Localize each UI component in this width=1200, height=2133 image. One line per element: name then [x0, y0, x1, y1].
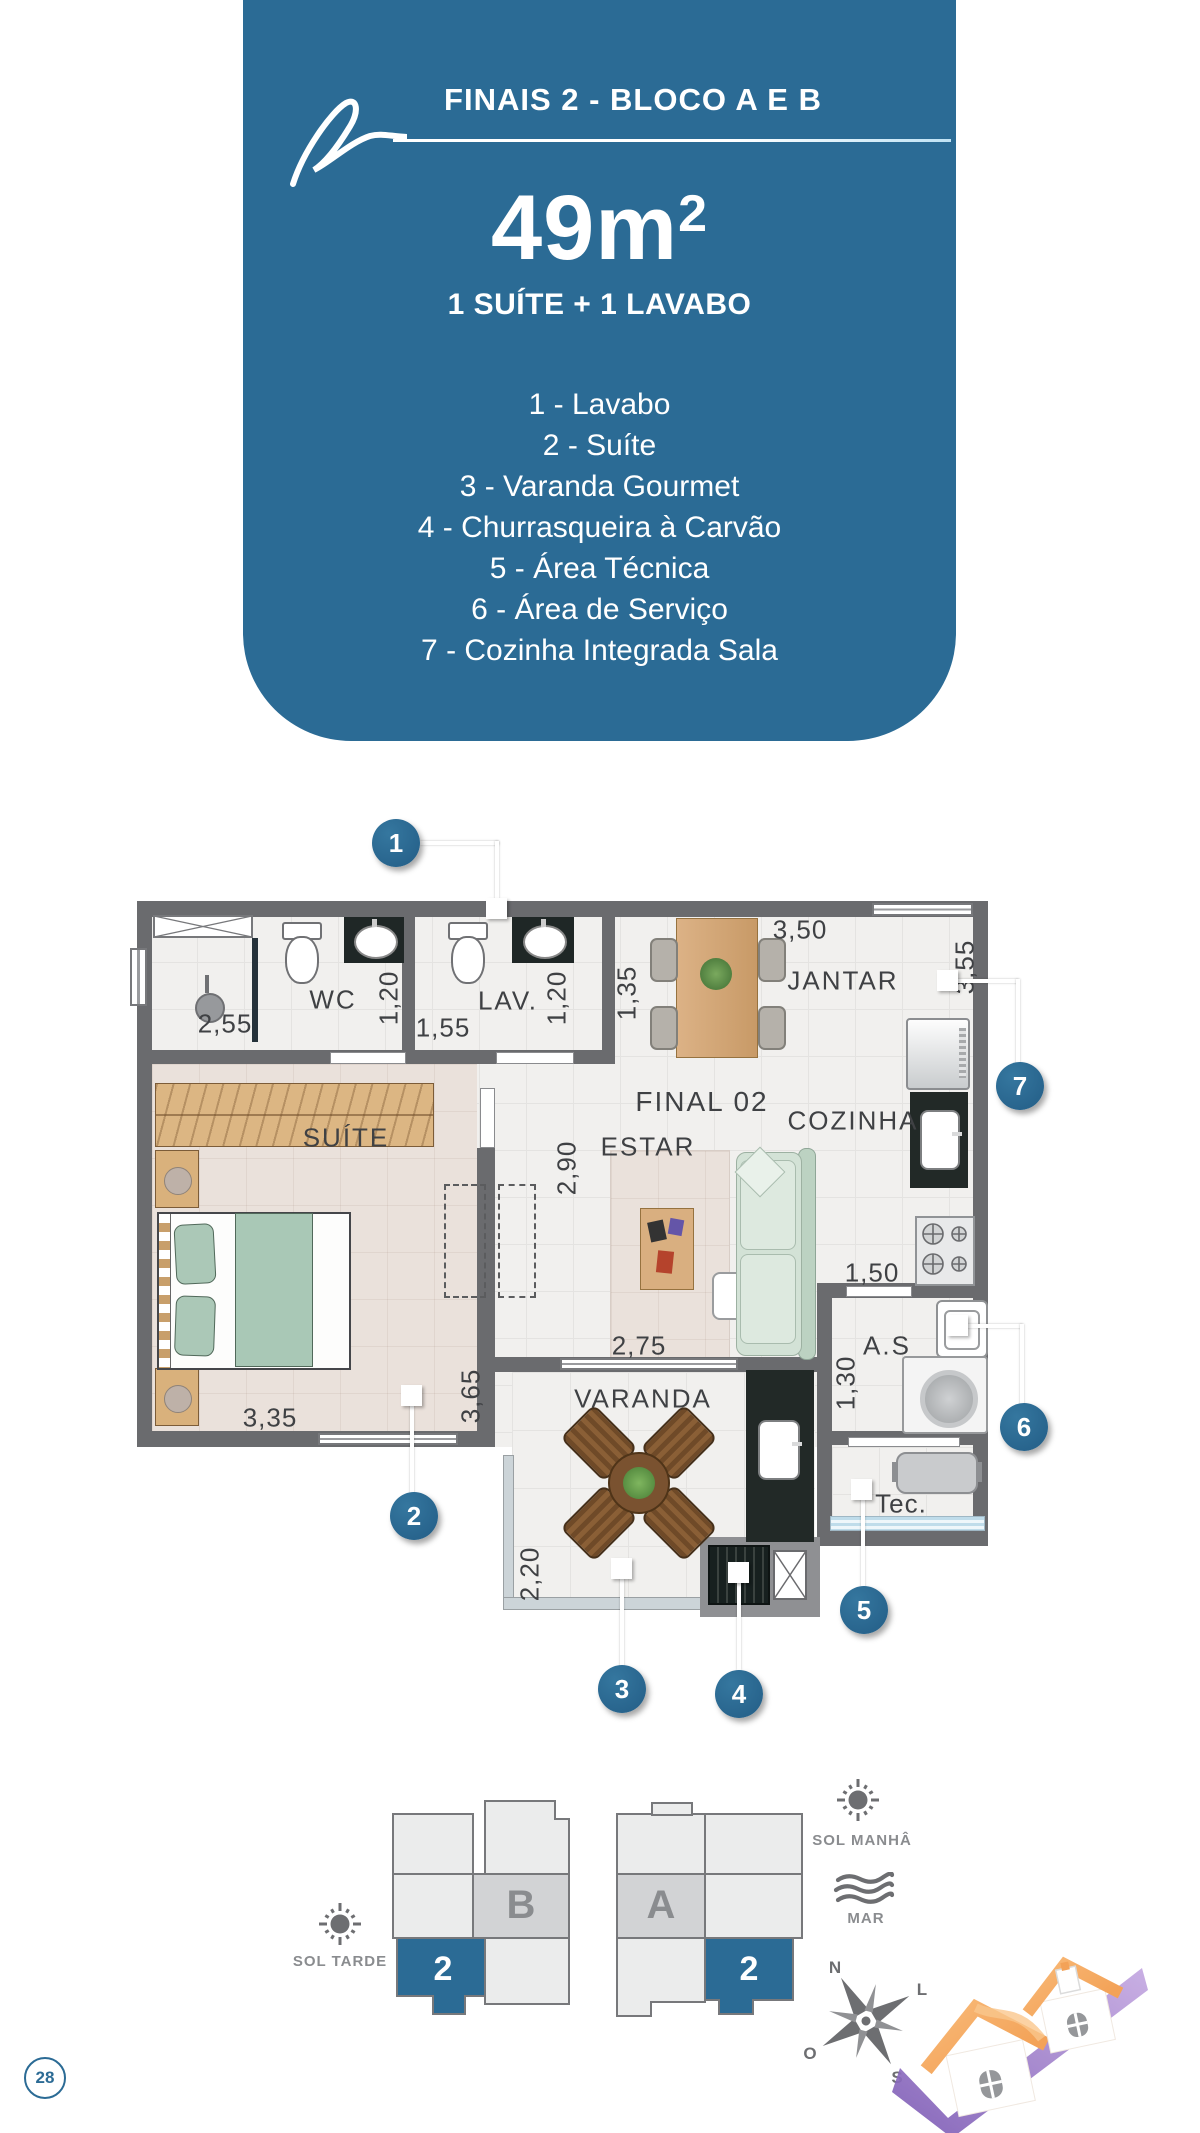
header-card: FINAIS 2 - BLOCO A E B 49m2 1 SUÍTE + 1 … — [243, 0, 956, 741]
dimension-label: 1,20 — [542, 971, 573, 1026]
room-label-estar: ESTAR — [601, 1132, 696, 1163]
room-label-jantar: JANTAR — [787, 966, 898, 997]
dimension-label: 2,90 — [552, 1141, 583, 1196]
bed — [157, 1212, 351, 1370]
table-plant — [700, 958, 732, 990]
callout-3: 3 — [598, 1665, 646, 1713]
coffee-table — [640, 1208, 694, 1290]
dimension-label: 1,50 — [845, 1258, 900, 1289]
bathroom-vanity — [512, 917, 574, 963]
sun-icon — [832, 1774, 884, 1826]
callout-4: 4 — [715, 1670, 763, 1718]
unit-configuration: 1 SUÍTE + 1 LAVABO — [243, 288, 956, 322]
dimension-label: 1,20 — [374, 971, 405, 1026]
plan-legend: 1 - Lavabo 2 - Suíte 3 - Varanda Gourmet… — [243, 384, 956, 671]
room-label-wc: WC — [309, 985, 356, 1016]
callout-1: 1 — [372, 819, 420, 867]
room-label-servico: A.S — [863, 1331, 911, 1362]
unit-area: 49m2 — [243, 176, 956, 281]
stove — [915, 1216, 975, 1286]
callout-line — [420, 841, 499, 845]
block-b-label: B — [507, 1883, 536, 1927]
callout-line — [957, 979, 1018, 983]
legend-item: 1 - Lavabo — [243, 384, 956, 425]
sliding-door — [848, 1437, 960, 1447]
brochure-page: FINAIS 2 - BLOCO A E B 49m2 1 SUÍTE + 1 … — [0, 0, 1200, 2133]
block-b-unit: 2 — [434, 1950, 453, 1988]
legend-item: 5 - Área Técnica — [243, 548, 956, 589]
legend-item: 7 - Cozinha Integrada Sala — [243, 630, 956, 671]
door — [330, 1052, 406, 1064]
callout-line — [737, 1582, 741, 1670]
door — [480, 1088, 495, 1148]
kitchen-counter — [910, 1092, 968, 1188]
room-label-varanda: VARANDA — [574, 1384, 712, 1415]
sun-icon — [314, 1898, 366, 1950]
wall-segment — [817, 1531, 988, 1546]
dimension-label: 1,55 — [416, 1013, 471, 1044]
unit-area-exp: 2 — [678, 185, 708, 243]
room-label-lavabo: LAV. — [478, 986, 538, 1017]
dimension-label: 2,75 — [612, 1331, 667, 1362]
dimension-label: 2,55 — [198, 1009, 253, 1040]
compass-o: O — [803, 2044, 816, 2063]
dimension-label: 3,50 — [773, 915, 828, 946]
callout-line — [861, 1499, 865, 1587]
chair — [650, 1006, 678, 1050]
compass-n: N — [829, 1958, 841, 1977]
toilet — [282, 922, 322, 986]
blanket — [235, 1213, 313, 1367]
unit-number-label: FINAL 02 — [635, 1086, 768, 1118]
page-title: FINAIS 2 - BLOCO A E B — [353, 82, 913, 118]
window — [318, 1433, 458, 1445]
unit-area-value: 49m — [491, 177, 678, 279]
legend-item: 2 - Suíte — [243, 425, 956, 466]
legend-item: 4 - Churrasqueira à Carvão — [243, 507, 956, 548]
sol-manha-label: SOL MANHÂ — [812, 1832, 912, 1849]
callout-line — [1020, 1324, 1024, 1404]
outdoor-table — [608, 1452, 670, 1514]
block-a-keyplan: A 2 — [612, 1800, 812, 2020]
wall-segment — [973, 901, 988, 1546]
nightstand — [155, 1368, 199, 1426]
closet-projection — [498, 1184, 536, 1298]
window — [130, 948, 147, 1006]
gourmet-counter — [746, 1370, 814, 1542]
bathroom-vanity — [344, 917, 404, 963]
nightstand — [155, 1150, 199, 1208]
sol-tarde-label: SOL TARDE — [293, 1953, 387, 1970]
window — [872, 903, 973, 916]
block-a-unit: 2 — [740, 1950, 759, 1988]
toilet — [448, 922, 488, 986]
callout-6: 6 — [1000, 1403, 1048, 1451]
callout-marker — [486, 898, 507, 919]
shower-box — [153, 915, 253, 938]
dimension-label: 1,35 — [612, 966, 643, 1021]
wall-segment — [817, 1283, 832, 1546]
wall-segment — [137, 901, 988, 917]
dimension-label: 3,35 — [243, 1403, 298, 1434]
room-label-tec: Tec. — [875, 1489, 927, 1520]
callout-7: 7 — [996, 1062, 1044, 1110]
room-label-cozinha: COZINHA — [788, 1106, 919, 1137]
callout-line — [1016, 979, 1020, 1063]
callout-marker — [851, 1479, 872, 1500]
title-underline — [393, 139, 951, 142]
shaft-box — [773, 1550, 807, 1600]
callout-marker — [611, 1558, 632, 1579]
builder-logo — [890, 1940, 1200, 2133]
callout-marker — [728, 1562, 749, 1583]
legend-item: 6 - Área de Serviço — [243, 589, 956, 630]
block-a-label: A — [647, 1883, 676, 1927]
sofa — [736, 1148, 814, 1358]
shower-head — [205, 975, 209, 993]
page-number-badge: 28 — [24, 2057, 66, 2099]
shower-divider — [252, 938, 258, 1042]
callout-5: 5 — [840, 1586, 888, 1634]
pillow — [174, 1295, 216, 1356]
callout-line — [410, 1404, 414, 1494]
dimension-label: 1,30 — [831, 1356, 862, 1411]
wardrobe — [155, 1083, 434, 1147]
varanda-railing — [503, 1455, 514, 1607]
refrigerator — [906, 1018, 970, 1090]
washing-machine — [902, 1356, 988, 1434]
dimension-label: 2,20 — [515, 1547, 546, 1602]
dimension-label: 3,65 — [456, 1369, 487, 1424]
chair — [650, 938, 678, 982]
pillow — [173, 1223, 216, 1285]
closet-projection — [444, 1184, 486, 1298]
chair — [758, 1006, 786, 1050]
callout-2: 2 — [390, 1492, 438, 1540]
room-label-suite: SUÍTE — [303, 1123, 390, 1154]
block-b-keyplan: B 2 — [385, 1800, 580, 2020]
legend-item: 3 - Varanda Gourmet — [243, 466, 956, 507]
callout-marker — [937, 970, 958, 991]
door — [496, 1052, 574, 1064]
sea-waves-icon — [832, 1872, 896, 1908]
callout-line — [620, 1578, 624, 1666]
callout-marker — [947, 1315, 968, 1336]
mar-label: MAR — [847, 1910, 884, 1927]
callout-marker — [401, 1385, 422, 1406]
